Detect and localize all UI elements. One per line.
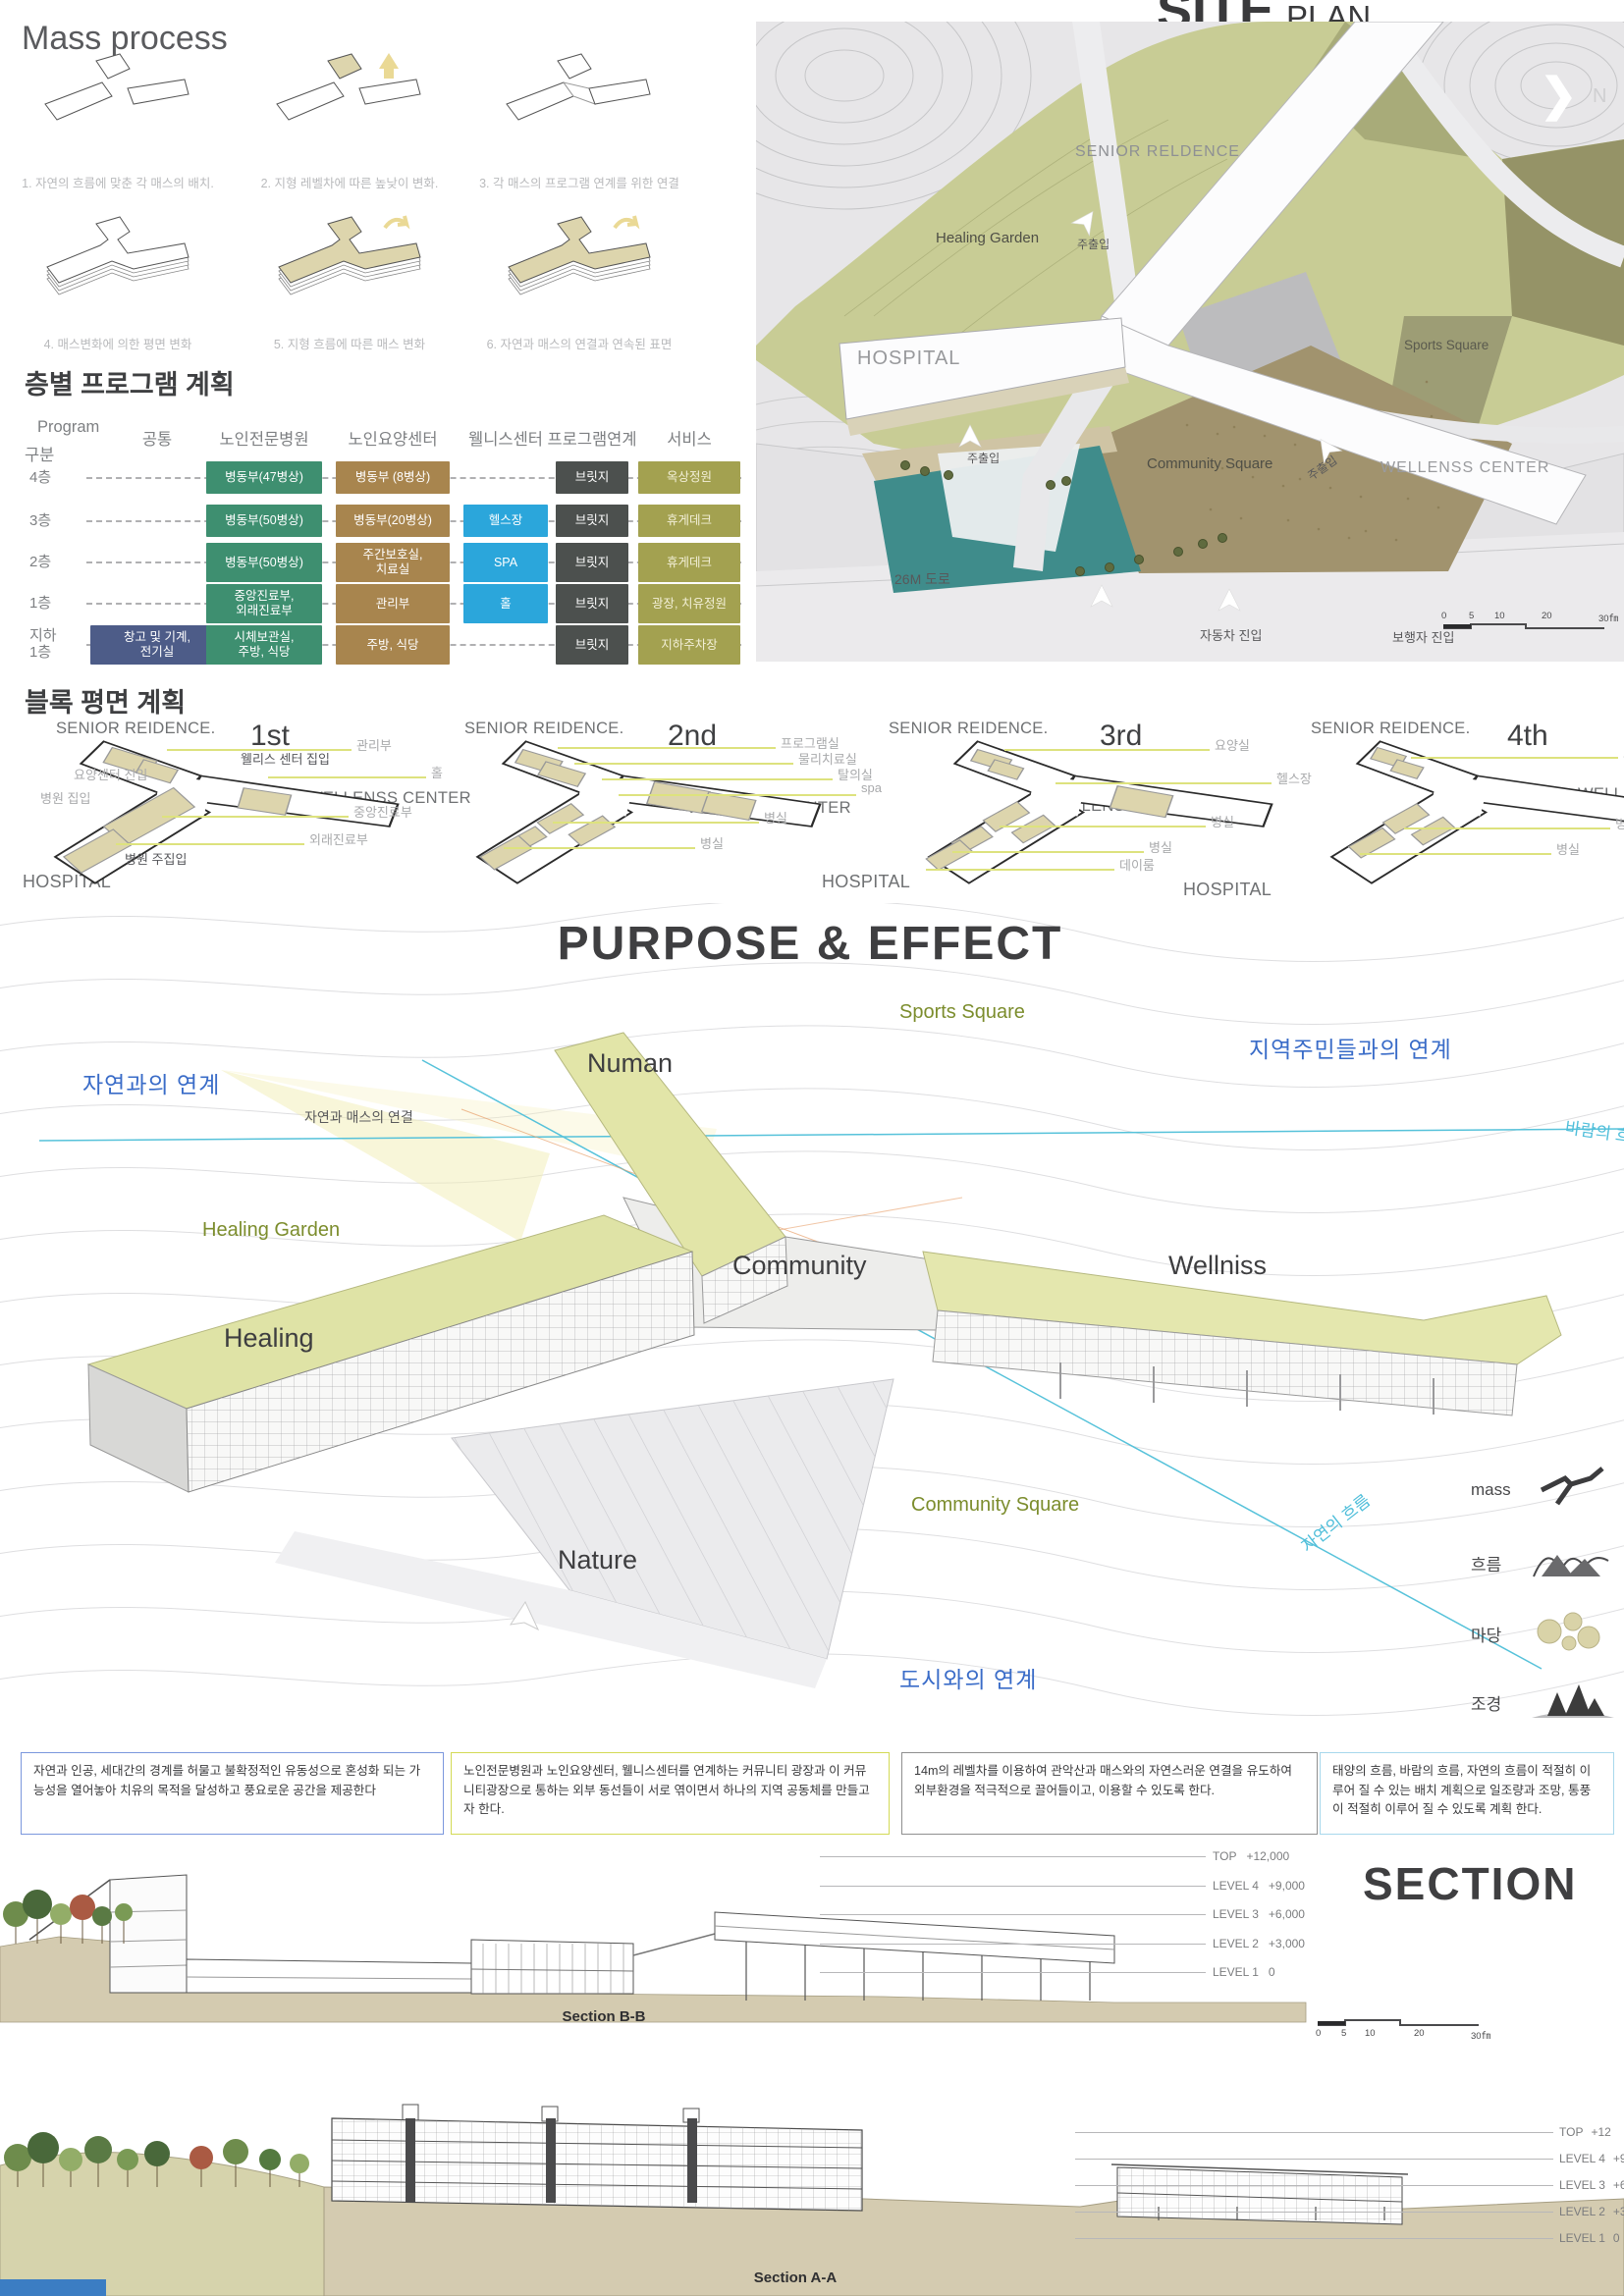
mass-step-caption: 1. 자연의 흐름에 맞춘 각 매스의 배치. — [0, 173, 236, 191]
section-aa-drawing — [0, 2089, 1624, 2296]
program-box-care: 병동부(20병상) — [336, 505, 450, 537]
bb-level-label: LEVEL 2+3,000 — [1213, 1937, 1305, 1950]
callout-label: 관리부 — [356, 735, 392, 754]
row-floor-label: 1층 — [29, 595, 51, 612]
program-box-care: 주간보호실, 치료실 — [336, 543, 450, 582]
callout-label: 병실 — [764, 808, 787, 827]
mass-step-icon — [37, 208, 199, 315]
floor-program-title: 층별 프로그램 계획 — [25, 363, 235, 401]
bb-scale-0: 0 — [1316, 2028, 1321, 2039]
bb-level-name: LEVEL 4 — [1213, 1879, 1259, 1893]
legend-label-마당: 마당 — [1471, 1622, 1501, 1646]
purpose-label-1: 자연과 매스의 연결 — [304, 1107, 413, 1127]
callout-label: 데이룸 — [1119, 855, 1155, 874]
mass-step-1: 1. 자연의 흐름에 맞춘 각 매스의 배치. — [0, 47, 236, 194]
program-box-service: 옥상정원 — [638, 461, 740, 494]
aa-level-line — [1075, 2238, 1553, 2239]
callout-line — [504, 847, 695, 849]
site-label-5: WELLENSS CENTER — [1380, 459, 1549, 477]
legend-label-조경: 조경 — [1471, 1690, 1501, 1715]
mass-step-5: 5. 지형 흐름에 따른 매스 변화 — [232, 208, 467, 355]
aa-level-value: 0 — [1613, 2231, 1620, 2245]
program-box-service: 휴게데크 — [638, 505, 740, 537]
presentation-board: Mass process1. 자연의 흐름에 맞춘 각 매스의 배치.2. 지형… — [0, 0, 1624, 2296]
program-box-wellness: 홀 — [463, 584, 548, 623]
program-box-link: 브릿지 — [556, 461, 628, 494]
mass-step-icon — [269, 47, 431, 154]
th-5: 서비스 — [601, 426, 778, 450]
bottom-blue-strip — [0, 2279, 106, 2296]
bb-level-name: TOP — [1213, 1849, 1236, 1863]
callout-line — [602, 778, 833, 780]
aa-level-line — [1075, 2132, 1553, 2133]
site-label-9: 26M 도로 — [894, 569, 950, 589]
aa-level-label: TOP+12 — [1559, 2125, 1611, 2139]
floor-plan-2nd: 2ndSENIOR REIDENCE.WELLENSS CENTERHOSPIT… — [437, 717, 869, 898]
legend-icon-3 — [1528, 1671, 1616, 1730]
row-floor-label: 2층 — [29, 554, 51, 570]
program-box-wellness: 헬스장 — [463, 505, 548, 537]
mass-step-caption: 6. 자연과 매스의 연결과 연속된 표면 — [461, 334, 697, 352]
bb-level-label: LEVEL 4+9,000 — [1213, 1879, 1305, 1893]
callout-line — [1004, 749, 1210, 751]
floor-plan-4th: 4thSENIOR REIDENCE.WELLENSS CENTER요양실병실병… — [1291, 717, 1624, 898]
th-gubun: 구분 — [25, 442, 54, 465]
callout-line — [1411, 757, 1618, 759]
row-floor-label: 4층 — [29, 469, 51, 486]
note-box-1: 자연과 인공, 세대간의 경계를 허물고 불확정적인 유동성으로 혼성화 되는 … — [21, 1752, 444, 1835]
bb-level-value: +12,000 — [1246, 1849, 1289, 1863]
callout-line — [574, 763, 793, 765]
purpose-label-2: Numan — [587, 1048, 673, 1079]
purpose-label-4: 지역주민들과의 연계 — [1249, 1031, 1452, 1064]
program-box-link: 브릿지 — [556, 543, 628, 582]
bb-level-value: +9,000 — [1269, 1879, 1305, 1893]
plan-shape — [903, 731, 1296, 898]
mass-step-icon — [499, 47, 661, 154]
program-box-link: 브릿지 — [556, 584, 628, 623]
site-label-4: Community Square — [1147, 455, 1272, 472]
callout-label: 요양센터 진입 — [74, 765, 147, 783]
floor-plan-3rd: 3rdSENIOR REIDENCE.WELLENSS CENTERHOSPIT… — [889, 717, 1321, 898]
site-scale-1: 5 — [1469, 611, 1474, 621]
block-plan-title: 블록 평면 계획 — [25, 681, 186, 720]
aa-level-name: LEVEL 2 — [1559, 2205, 1605, 2218]
mass-step-6: 6. 자연과 매스의 연결과 연속된 표면 — [461, 208, 697, 355]
program-box-wellness: SPA — [463, 543, 548, 582]
aa-level-name: LEVEL 1 — [1559, 2231, 1605, 2245]
mass-step-caption: 4. 매스변화에 의한 평면 변화 — [0, 334, 236, 352]
bb-level-label: LEVEL 3+6,000 — [1213, 1907, 1305, 1921]
program-box-common: 창고 및 기계, 전기실 — [90, 625, 224, 665]
legend-label-mass: mass — [1471, 1480, 1511, 1500]
site-scale-4: 30㎙ — [1598, 611, 1618, 624]
bb-scale-4: 30㎙ — [1471, 2028, 1490, 2042]
callout-label: 병실 — [1149, 837, 1172, 856]
callout-line — [268, 776, 426, 778]
mass-step-icon — [269, 208, 431, 315]
legend-label-흐름: 흐름 — [1471, 1551, 1501, 1575]
site-label-7: 주출입 — [967, 450, 1000, 466]
aa-level-line — [1075, 2159, 1553, 2160]
callout-line — [558, 747, 776, 749]
site-scale-0: 0 — [1441, 611, 1446, 621]
legend-icon-1 — [1528, 1531, 1616, 1590]
program-box-hospital: 시체보관실, 주방, 식당 — [206, 625, 322, 665]
callout-line — [1404, 828, 1610, 829]
site-plan-section: SITEPLAN❯NSENIOR RELDENCEHealing GardenH… — [756, 0, 1624, 666]
bb-level-name: LEVEL 2 — [1213, 1937, 1259, 1950]
callout-label: 병원 집입 — [40, 788, 90, 807]
bb-level-line — [820, 1914, 1206, 1915]
purpose-label-6: Healing Garden — [202, 1219, 340, 1242]
program-box-care: 병동부 (8병상) — [336, 461, 450, 494]
bb-level-label: LEVEL 10 — [1213, 1965, 1275, 1979]
purpose-label-13: 도시와의 연계 — [899, 1661, 1037, 1694]
aa-level-value: +6,0 — [1613, 2178, 1624, 2192]
callout-label: 병실 — [1556, 839, 1580, 858]
purpose-label-10: Community Square — [911, 1494, 1079, 1517]
note-box-2: 노인전문병원과 노인요양센터, 웰니스센터를 연계하는 커뮤니티 광장과 이 커… — [451, 1752, 890, 1835]
site-scale-2: 10 — [1494, 611, 1505, 621]
program-box-hospital: 병동부(47병상) — [206, 461, 322, 494]
program-box-link: 브릿지 — [556, 505, 628, 537]
bb-level-value: +3,000 — [1269, 1937, 1305, 1950]
site-scale-3: 20 — [1542, 611, 1552, 621]
aa-level-value: +9,0 — [1613, 2152, 1624, 2165]
bb-scale-2: 10 — [1365, 2028, 1376, 2039]
program-box-hospital: 병동부(50병상) — [206, 505, 322, 537]
site-label-8: 주출입 — [1304, 452, 1340, 484]
callout-line — [1000, 826, 1206, 828]
aa-level-name: LEVEL 4 — [1559, 2152, 1605, 2165]
bb-scale-3: 20 — [1414, 2028, 1425, 2039]
mass-step-2: 2. 지형 레벨차에 따른 높낮이 변화. — [232, 47, 467, 194]
aa-level-label: LEVEL 10 — [1559, 2231, 1620, 2245]
purpose-title: PURPOSE & EFFECT — [481, 917, 1139, 971]
floor-program-section: 층별 프로그램 계획Program구분공통노인전문병원노인요양센터웰니스센터프로… — [0, 353, 756, 667]
callout-line — [619, 794, 856, 796]
aa-level-name: TOP — [1559, 2125, 1583, 2139]
purpose-label-0: 자연과의 연계 — [82, 1066, 220, 1099]
site-label-0: SENIOR RELDENCE — [1075, 143, 1240, 161]
callout-label: 웰리스 센터 집입 — [241, 749, 330, 768]
mass-step-icon — [499, 208, 661, 315]
row-floor-label: 3층 — [29, 512, 51, 529]
mass-step-caption: 2. 지형 레벨차에 따른 높낮이 변화. — [232, 173, 467, 191]
callout-label: 요양실 — [1215, 735, 1250, 754]
site-label-6: 주출입 — [1077, 236, 1110, 252]
mass-process-section: Mass process1. 자연의 흐름에 맞춘 각 매스의 배치.2. 지형… — [0, 0, 756, 353]
purpose-label-8: Wellniss — [1168, 1251, 1267, 1281]
bb-level-line — [820, 1886, 1206, 1887]
row-floor-label: 지하 1층 — [29, 627, 57, 662]
mass-step-icon — [37, 47, 199, 154]
aa-level-value: +3,0 — [1613, 2205, 1624, 2218]
note-box-4: 태양의 흐름, 바람의 흐름, 자연의 흐름이 적절히 이루어 질 수 있는 배… — [1320, 1752, 1614, 1835]
program-box-care: 주방, 식당 — [336, 625, 450, 665]
purpose-label-3: Sports Square — [899, 1001, 1025, 1024]
mass-step-caption: 5. 지형 흐름에 따른 매스 변화 — [232, 334, 467, 352]
program-box-link: 브릿지 — [556, 625, 628, 665]
mass-step-3: 3. 각 매스의 프로그램 연계를 위한 연결 — [461, 47, 697, 194]
section-aa-area: TOP+12LEVEL 4+9,0LEVEL 3+6,0LEVEL 2+3,0L… — [0, 2089, 1624, 2296]
callout-label: 외래진료부 — [309, 829, 368, 848]
notes-section: 자연과 인공, 세대간의 경계를 허물고 불확정적인 유동성으로 혼성화 되는 … — [0, 1747, 1624, 1843]
site-label-2: HOSPITAL — [857, 347, 960, 370]
aa-level-value: +12 — [1591, 2125, 1610, 2139]
section-bb-label: Section B-B — [511, 2008, 697, 2025]
bb-level-label: TOP+12,000 — [1213, 1849, 1289, 1863]
purpose-label-7: Community — [732, 1251, 867, 1281]
callout-label: 병실 — [1615, 814, 1624, 832]
bb-level-name: LEVEL 3 — [1213, 1907, 1259, 1921]
callout-label: 병실 — [1211, 812, 1234, 830]
section-big-title: SECTION — [1363, 1857, 1577, 1910]
program-box-service: 지하주차장 — [638, 625, 740, 665]
callout-line — [116, 843, 304, 845]
purpose-effect-section: PURPOSE & EFFECT자연과의 연계자연과 매스의 연결NumanSp… — [0, 903, 1624, 1747]
program-box-care: 관리부 — [336, 584, 450, 623]
program-box-hospital: 병동부(50병상) — [206, 543, 322, 582]
program-box-service: 광장, 치유정원 — [638, 584, 740, 623]
bb-scale-1: 5 — [1341, 2028, 1346, 2039]
bb-level-name: LEVEL 1 — [1213, 1965, 1259, 1979]
aa-level-line — [1075, 2212, 1553, 2213]
legend-icon-0 — [1528, 1461, 1616, 1515]
bb-level-line — [820, 1944, 1206, 1945]
callout-line — [162, 816, 349, 818]
purpose-label-11: Nature — [558, 1545, 637, 1575]
site-label-1: Healing Garden — [936, 230, 1039, 246]
callout-label: spa — [861, 780, 882, 795]
site-plan-labels: SENIOR RELDENCEHealing GardenHOSPITALSpo… — [756, 22, 1624, 662]
note-box-3: 14m의 레벨차를 이용하여 관악산과 매스와의 자연스러운 연결을 유도하여 … — [901, 1752, 1318, 1835]
program-box-hospital: 중앙진료부, 외래진료부 — [206, 584, 322, 623]
block-plan-section: 블록 평면 계획1stSENIOR REIDENCE.WELLENSS CENT… — [0, 667, 1624, 903]
bb-level-value: 0 — [1269, 1965, 1275, 1979]
program-box-service: 휴게데크 — [638, 543, 740, 582]
callout-label: 병실 — [700, 833, 724, 852]
aa-level-line — [1075, 2185, 1553, 2186]
aa-level-label: LEVEL 3+6,0 — [1559, 2178, 1624, 2192]
callout-line — [1360, 853, 1551, 855]
site-label-10: 자동차 진입 — [1200, 625, 1262, 644]
mass-step-caption: 3. 각 매스의 프로그램 연계를 위한 연결 — [461, 173, 697, 191]
callout-line — [952, 851, 1144, 853]
legend-icon-2 — [1528, 1602, 1616, 1661]
callout-label: 중앙진료부 — [353, 802, 412, 821]
callout-line — [553, 822, 759, 824]
callout-line — [1056, 782, 1272, 784]
bb-level-line — [820, 1972, 1206, 1973]
bb-level-value: +6,000 — [1269, 1907, 1305, 1921]
section-aa-label: Section A-A — [687, 2269, 903, 2286]
mass-step-4: 4. 매스변화에 의한 평면 변화 — [0, 208, 236, 355]
site-label-11: 보행자 진입 — [1392, 627, 1454, 646]
bb-level-line — [820, 1856, 1206, 1857]
aa-level-label: LEVEL 2+3,0 — [1559, 2205, 1624, 2218]
section-bb-area: TOP+12,000LEVEL 4+9,000LEVEL 3+6,000LEVE… — [0, 1843, 1624, 2089]
site-label-3: Sports Square — [1404, 338, 1489, 352]
bb-scale-bar: 05102030㎙ — [1316, 2010, 1492, 2040]
callout-label: 병원 주집입 — [125, 849, 187, 868]
purpose-label-9: Healing — [224, 1323, 314, 1354]
floor-plan-1st: 1stSENIOR REIDENCE.WELLENSS CENTERHOSPIT… — [15, 717, 447, 898]
aa-level-label: LEVEL 4+9,0 — [1559, 2152, 1624, 2165]
aa-level-name: LEVEL 3 — [1559, 2178, 1605, 2192]
callout-line — [926, 869, 1114, 871]
